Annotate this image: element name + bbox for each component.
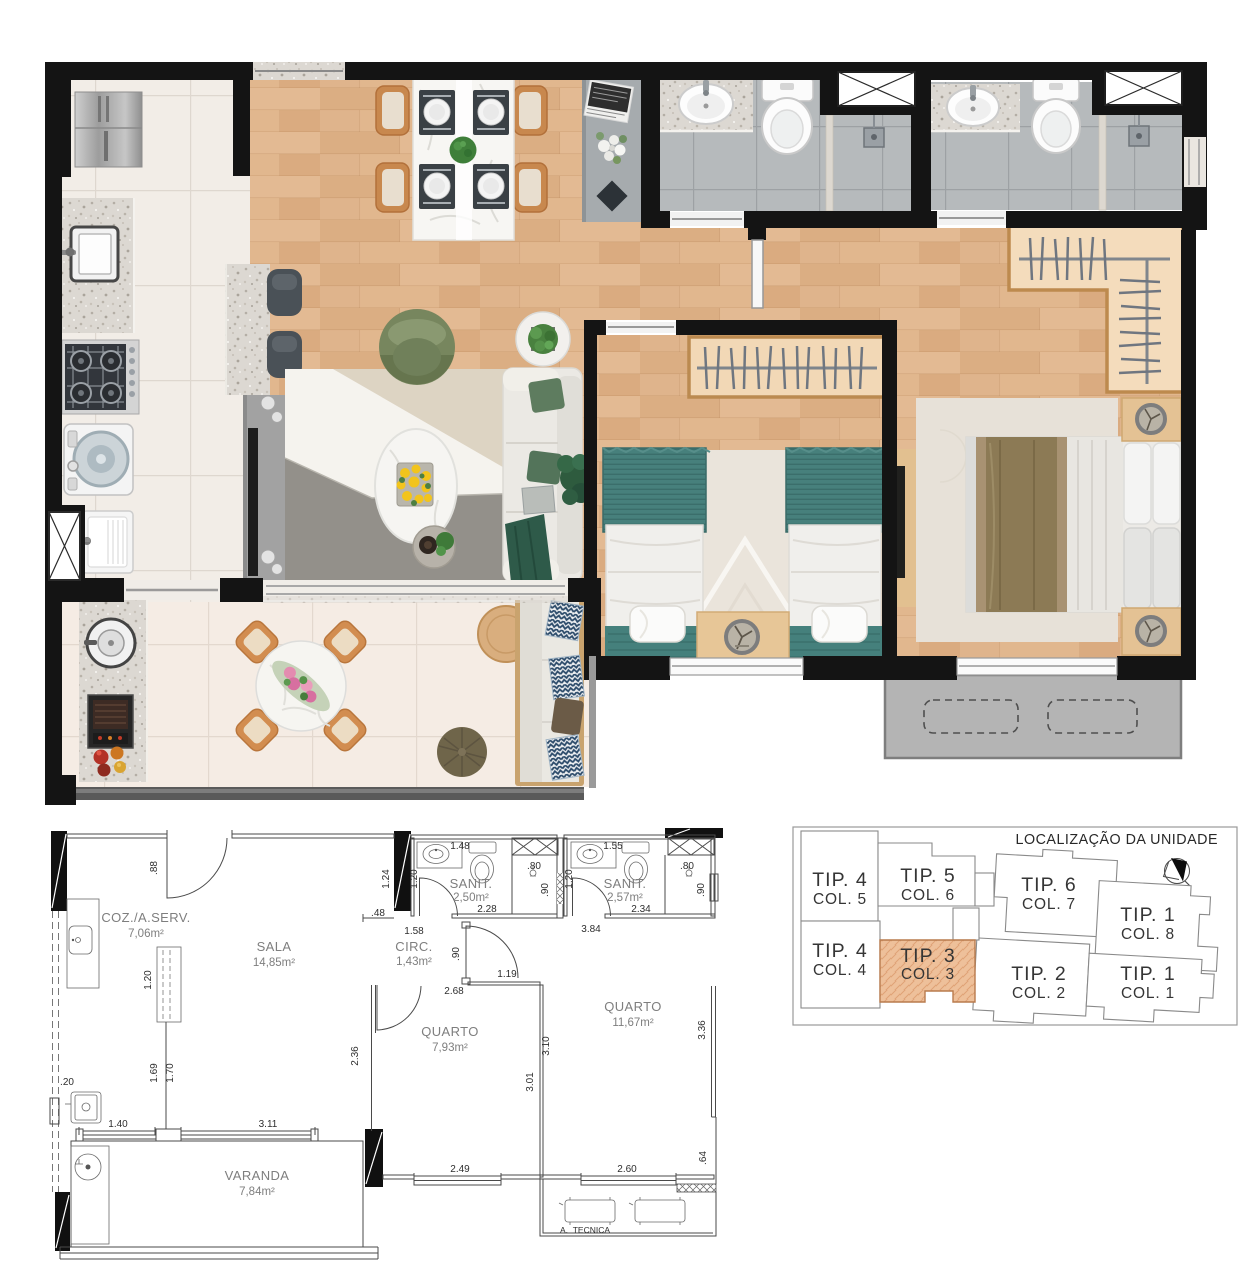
svg-text:CIRC.: CIRC. (395, 939, 432, 954)
svg-text:1.24: 1.24 (381, 869, 392, 889)
svg-text:7,84m²: 7,84m² (239, 1186, 275, 1198)
svg-text:1,43m²: 1,43m² (396, 956, 432, 968)
svg-text:.20: .20 (60, 1077, 74, 1088)
svg-text:3.84: 3.84 (581, 924, 601, 935)
svg-text:1.20: 1.20 (409, 869, 420, 889)
svg-text:TIP. 6: TIP. 6 (1021, 874, 1077, 896)
svg-text:14,85m²: 14,85m² (253, 957, 295, 969)
svg-text:TIP. 4: TIP. 4 (812, 940, 868, 962)
svg-text:7,06m²: 7,06m² (128, 928, 164, 940)
svg-text:LOCALIZAÇÃO DA UNIDADE: LOCALIZAÇÃO DA UNIDADE (1016, 831, 1218, 848)
svg-text:.48: .48 (371, 908, 385, 919)
svg-text:2.68: 2.68 (444, 986, 464, 997)
svg-text:COL. 1: COL. 1 (1121, 985, 1175, 1002)
svg-text:1.48: 1.48 (450, 841, 470, 852)
svg-text:TIP. 4: TIP. 4 (812, 869, 868, 891)
svg-text:COL. 6: COL. 6 (901, 887, 955, 904)
svg-text:A. TECNICA: A. TECNICA (560, 1225, 610, 1235)
svg-text:3.11: 3.11 (259, 1119, 278, 1130)
svg-text:1.40: 1.40 (108, 1119, 128, 1130)
svg-text:.64: .64 (698, 1151, 709, 1165)
svg-text:COZ./A.SERV.: COZ./A.SERV. (101, 910, 190, 925)
svg-text:2,50m²: 2,50m² (453, 892, 489, 904)
svg-text:3.36: 3.36 (697, 1020, 708, 1040)
svg-text:SANIT.: SANIT. (450, 876, 493, 891)
svg-text:7,93m²: 7,93m² (432, 1042, 468, 1054)
svg-text:1.69: 1.69 (149, 1063, 160, 1083)
svg-text:QUARTO: QUARTO (421, 1024, 479, 1039)
svg-text:1.20: 1.20 (143, 970, 154, 990)
svg-text:COL. 5: COL. 5 (813, 891, 867, 908)
svg-text:COL. 2: COL. 2 (1012, 985, 1066, 1002)
svg-text:2,57m²: 2,57m² (607, 892, 643, 904)
svg-text:11,67m²: 11,67m² (612, 1017, 654, 1029)
svg-text:1.55: 1.55 (603, 841, 623, 852)
svg-text:TIP. 5: TIP. 5 (900, 865, 956, 887)
svg-text:COL. 3: COL. 3 (901, 966, 955, 983)
svg-text:3.01: 3.01 (525, 1072, 536, 1092)
svg-text:.88: .88 (149, 861, 160, 875)
svg-text:.90: .90 (540, 883, 551, 897)
svg-text:1.20: 1.20 (564, 869, 575, 889)
svg-text:2.28: 2.28 (477, 904, 497, 915)
svg-text:.80: .80 (527, 861, 541, 872)
svg-text:1.58: 1.58 (404, 926, 424, 937)
svg-text:QUARTO: QUARTO (604, 999, 662, 1014)
svg-text:TIP. 1: TIP. 1 (1120, 963, 1176, 985)
svg-text:.90: .90 (451, 947, 462, 961)
svg-text:1.19: 1.19 (497, 969, 517, 980)
svg-text:COL. 8: COL. 8 (1121, 926, 1175, 943)
svg-text:2.36: 2.36 (350, 1046, 361, 1066)
svg-text:VARANDA: VARANDA (225, 1168, 290, 1183)
svg-text:3.10: 3.10 (541, 1036, 552, 1056)
svg-text:TIP. 1: TIP. 1 (1120, 904, 1176, 926)
svg-text:2.49: 2.49 (450, 1164, 470, 1175)
svg-text:TIP. 3: TIP. 3 (900, 945, 956, 967)
svg-text:2.60: 2.60 (617, 1164, 637, 1175)
svg-text:2.34: 2.34 (631, 904, 651, 915)
svg-text:.90: .90 (696, 883, 707, 897)
svg-text:1.70: 1.70 (165, 1063, 176, 1083)
svg-text:COL. 4: COL. 4 (813, 962, 867, 979)
svg-text:SANIT.: SANIT. (604, 876, 647, 891)
svg-text:TIP. 2: TIP. 2 (1011, 963, 1067, 985)
svg-text:.80: .80 (680, 861, 694, 872)
svg-text:SALA: SALA (257, 939, 292, 954)
svg-text:COL. 7: COL. 7 (1022, 896, 1076, 913)
